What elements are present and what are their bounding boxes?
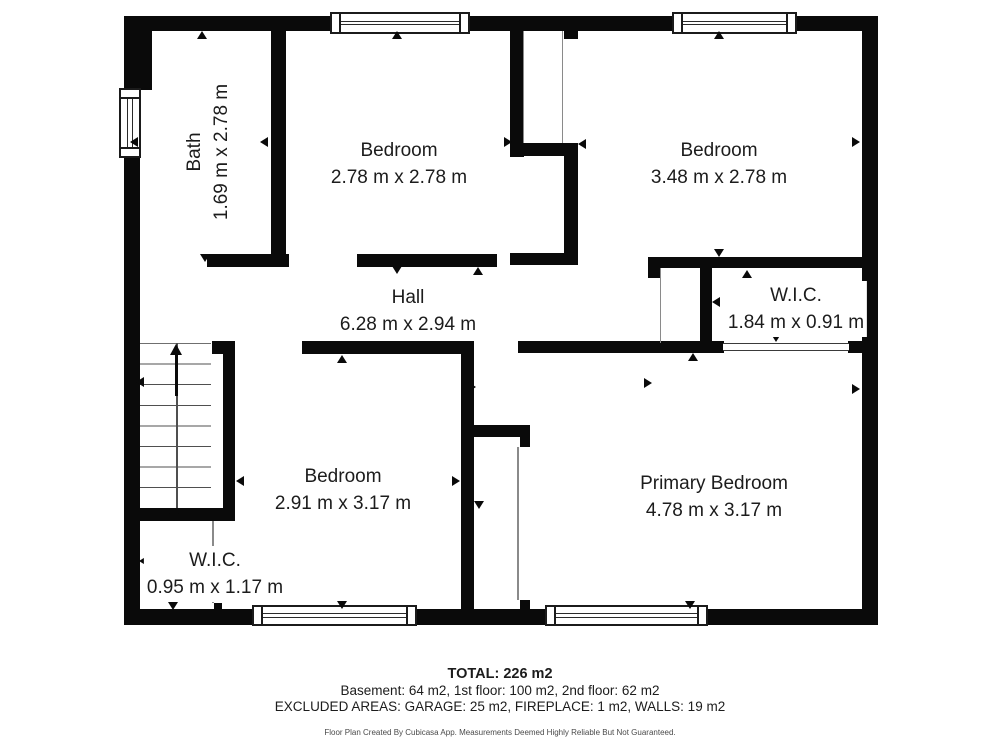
door-marker-icon: [168, 602, 178, 610]
wall: [473, 425, 530, 437]
room-name: Bedroom: [651, 137, 787, 164]
window-pane-icon: [681, 14, 788, 32]
room-name: Bedroom: [331, 137, 467, 164]
floor-plan: Bath 1.69 m x 2.78 m Bedroom 2.78 m x 2.…: [0, 0, 1000, 750]
area-summary: TOTAL: 226 m2 Basement: 64 m2, 1st floor…: [0, 666, 1000, 738]
door-marker-icon: [688, 353, 698, 361]
wall: [518, 341, 723, 353]
door-marker-icon: [392, 31, 402, 39]
stairs-up-arrow-icon: [170, 344, 182, 355]
disclaimer-text: Floor Plan Created By Cubicasa App. Meas…: [0, 728, 1000, 738]
room-label-wic-lower: W.I.C. 0.95 m x 1.17 m: [144, 546, 286, 602]
room-name: W.I.C.: [728, 282, 864, 309]
door-marker-icon: [474, 501, 484, 509]
door-marker-icon: [130, 137, 138, 147]
door-marker-icon: [685, 601, 695, 609]
corridor-door-line: [660, 268, 661, 343]
wall: [214, 603, 222, 612]
room-name: Bath: [181, 84, 208, 220]
room-dimensions: 1.69 m x 2.78 m: [208, 84, 235, 220]
window-pane-icon: [261, 607, 408, 624]
door-marker-icon: [136, 377, 144, 387]
wall: [207, 254, 289, 267]
wall: [564, 31, 578, 39]
wall: [510, 31, 524, 157]
room-name: Hall: [340, 284, 476, 311]
window: [545, 605, 708, 626]
room-label-primary-bedroom: Primary Bedroom 4.78 m x 3.17 m: [637, 469, 791, 525]
room-dimensions: 1.84 m x 0.91 m: [728, 309, 864, 336]
wall: [648, 268, 660, 278]
stairs-up-arrow-icon: [175, 354, 178, 396]
window: [672, 12, 797, 34]
room-dimensions: 0.95 m x 1.17 m: [147, 574, 283, 601]
wall: [124, 609, 878, 625]
window: [252, 605, 417, 626]
room-dimensions: 2.91 m x 3.17 m: [275, 490, 411, 517]
room-dimensions: 2.78 m x 2.78 m: [331, 164, 467, 191]
excluded-areas-text: EXCLUDED AREAS: GARAGE: 25 m2, FIREPLACE…: [0, 699, 1000, 715]
room-label-bedroom-top-left: Bedroom 2.78 m x 2.78 m: [328, 136, 470, 192]
wall: [357, 254, 497, 267]
door-marker-icon: [852, 384, 860, 394]
wall: [302, 341, 463, 354]
room-label-bedroom-lower: Bedroom 2.91 m x 3.17 m: [272, 462, 414, 518]
wall: [510, 253, 578, 265]
door-marker-icon: [236, 476, 244, 486]
door-marker-icon: [712, 297, 720, 307]
wall: [271, 31, 286, 267]
wall: [848, 341, 862, 353]
room-name: Bedroom: [275, 463, 411, 490]
wall: [124, 16, 152, 90]
wall: [520, 600, 530, 612]
door-marker-icon: [714, 31, 724, 39]
door-marker-icon: [197, 31, 207, 39]
door-marker-icon: [742, 270, 752, 278]
door-marker-icon: [452, 476, 460, 486]
door-marker-icon: [337, 601, 347, 609]
room-label-wic-upper: W.I.C. 1.84 m x 0.91 m: [725, 281, 867, 337]
room-name: Primary Bedroom: [640, 470, 788, 497]
door-marker-icon: [714, 249, 724, 257]
room-label-hall: Hall 6.28 m x 2.94 m: [337, 283, 479, 339]
wall: [520, 437, 530, 447]
floor-areas-text: Basement: 64 m2, 1st floor: 100 m2, 2nd …: [0, 683, 1000, 699]
closet-door-line: [523, 31, 524, 143]
door-marker-icon: [392, 266, 402, 274]
door-marker-icon: [473, 267, 483, 275]
door-marker-icon: [504, 137, 512, 147]
room-label-bedroom-top-right: Bedroom 3.48 m x 2.78 m: [648, 136, 790, 192]
door-marker-icon: [644, 378, 652, 388]
wall: [137, 508, 235, 521]
wall: [648, 257, 862, 268]
door-marker-icon: [578, 139, 586, 149]
door-marker-icon: [200, 254, 210, 262]
wall: [223, 341, 235, 521]
closet-door-line: [517, 447, 519, 600]
door-marker-icon: [852, 137, 860, 147]
room-dimensions: 4.78 m x 3.17 m: [640, 497, 788, 524]
room-dimensions: 6.28 m x 2.94 m: [340, 311, 476, 338]
door-marker-icon: [337, 355, 347, 363]
wall: [564, 143, 578, 265]
door-marker-icon: [169, 513, 179, 521]
door-marker-icon: [260, 137, 268, 147]
window: [119, 88, 141, 158]
room-label-bath: Bath 1.69 m x 2.78 m: [180, 81, 236, 223]
total-area-text: TOTAL: 226 m2: [0, 666, 1000, 683]
room-dimensions: 3.48 m x 2.78 m: [651, 164, 787, 191]
wall: [710, 341, 724, 353]
window-pane-icon: [339, 14, 461, 32]
window-pane-icon: [554, 607, 699, 624]
door-marker-icon: [468, 382, 476, 392]
room-name: W.I.C.: [147, 547, 283, 574]
sliding-door: [723, 343, 849, 351]
closet-door-line: [562, 31, 563, 143]
